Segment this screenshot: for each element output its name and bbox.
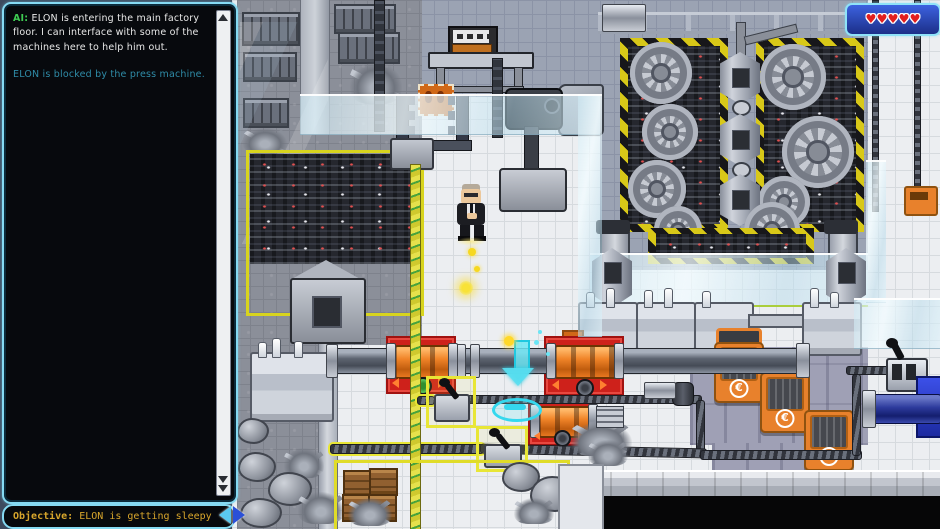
gear-icon: [760, 44, 826, 110]
glass-wall: [300, 94, 600, 135]
character-brow: [464, 193, 478, 197]
junction-lever-knob: [886, 338, 898, 348]
log-scrollbar[interactable]: [216, 10, 231, 496]
gear-icon: [630, 42, 692, 104]
euro-label: €: [735, 381, 743, 394]
marker-sparkle: [538, 330, 542, 334]
rock: [240, 498, 282, 528]
marker-oval-bar: [504, 404, 526, 410]
cable: [700, 450, 862, 460]
crate: [369, 468, 398, 496]
heart-icon: ♥: [888, 12, 897, 27]
game-screen: € € €: [0, 0, 940, 529]
control-machine-grid: [453, 30, 489, 43]
trail-dot: [459, 281, 473, 295]
metal-pallet: [334, 4, 396, 34]
lever-switch[interactable]: [434, 394, 470, 422]
metal-pallet: [338, 32, 400, 64]
bottle: [644, 290, 653, 308]
log-message: ELON is blocked by the press machine.: [13, 68, 210, 82]
bottle: [810, 288, 819, 308]
orange-hoist-block: [904, 186, 938, 216]
pipe-coupler: [470, 344, 480, 378]
pod-slot: [732, 130, 750, 150]
corner-tower-cap: [824, 220, 858, 234]
barrier-pillar-slot: [604, 262, 622, 284]
euro-badge: €: [776, 409, 795, 428]
nav-arrow-right-icon[interactable]: [233, 506, 245, 524]
pad-arrow-left: [552, 380, 559, 390]
heart-icon: ♥: [911, 12, 920, 27]
cable-highlighted[interactable]: [330, 444, 484, 454]
character-glow: [456, 237, 486, 246]
marker-arrow-down-icon[interactable]: [502, 368, 534, 386]
message-log-panel: AI: ELON is entering the main factory fl…: [2, 2, 238, 504]
marker-sparkle: [534, 340, 539, 345]
scrap-pile: [514, 498, 554, 524]
heart-icon: ♥: [877, 12, 886, 27]
health-hearts: ♥♥♥♥♥: [845, 3, 940, 36]
rock: [238, 452, 276, 482]
pipe-cap: [326, 344, 338, 378]
marker-stem: [514, 340, 530, 370]
workbench: [802, 302, 862, 356]
heart-icon: ♥: [900, 12, 909, 27]
machinery-shelf: [250, 154, 414, 264]
pod-slot: [732, 68, 750, 88]
trail-dot: [474, 266, 480, 272]
cable: [852, 374, 861, 456]
bottle: [258, 342, 267, 358]
bottle: [294, 341, 303, 358]
pad-arrow-left: [392, 378, 399, 388]
junction-slot: [892, 364, 902, 380]
bottle: [664, 288, 673, 308]
elon-character[interactable]: [455, 182, 487, 244]
euro-label: €: [781, 411, 789, 424]
bottle: [606, 288, 615, 308]
objective-text: ELON is getting sleepy: [73, 511, 211, 522]
marker-oval[interactable]: [492, 398, 542, 422]
character-hands: [467, 213, 477, 219]
scroll-up-icon[interactable]: [218, 14, 228, 21]
pod-slot: [732, 190, 750, 210]
message-text: ELON is blocked by the press machine.: [13, 69, 205, 80]
barrier-pillar-slot: [838, 262, 856, 284]
junction-slot: [906, 364, 916, 380]
bench-rail: [748, 314, 808, 328]
cylinder-cap: [546, 343, 556, 379]
marker-sun-dot: [504, 336, 514, 346]
glass-wall-vertical: [578, 94, 602, 337]
pad-arrow-right: [600, 380, 607, 390]
objective-bar: Objective: ELON is getting sleepy: [2, 504, 236, 529]
pad-arrow-left: [534, 432, 540, 440]
euro-robot: €: [804, 410, 854, 471]
scroll-down-icon[interactable]: [218, 485, 228, 492]
press-cylinder: [390, 345, 456, 379]
orange-hoist-slot: [910, 192, 928, 200]
rock: [237, 418, 269, 444]
objective-label: Objective:: [13, 511, 73, 522]
bottle: [830, 292, 839, 308]
top-wall: [420, 0, 600, 97]
blue-pipe-cap: [862, 390, 876, 428]
message-text: ELON is entering the main factory floor.…: [13, 13, 199, 53]
cylinder-cap: [386, 343, 396, 379]
robot-screen: [766, 377, 804, 411]
pod-joint: [732, 100, 751, 116]
euro-badge: €: [730, 379, 749, 398]
robot-screen: [810, 415, 848, 449]
trail-dot: [468, 248, 476, 256]
speaker-label: AI:: [13, 13, 28, 24]
gear-icon: [642, 104, 698, 160]
blue-pipe: [870, 394, 940, 424]
cylinder-cap: [614, 343, 624, 379]
cylinder-cap: [448, 343, 458, 379]
glass-wall-vertical: [866, 160, 886, 303]
lower-level-void: [596, 496, 940, 529]
marker-sparkle: [546, 352, 550, 356]
pipe-coupler: [796, 343, 810, 378]
nav-arrow-left-icon[interactable]: [219, 506, 231, 524]
heart-icon: ♥: [866, 12, 875, 27]
press-machine-base: [499, 168, 567, 212]
bottle: [702, 291, 711, 308]
log-message: AI: ELON is entering the main factory fl…: [13, 12, 210, 55]
plate-stack: [596, 406, 624, 428]
euro-robot: €: [760, 372, 810, 433]
scrap-pile: [348, 498, 392, 526]
metal-box: [602, 4, 646, 32]
bottle: [272, 338, 281, 358]
door-frame: [558, 464, 604, 529]
workbench: [250, 352, 334, 422]
scroll-down-icon[interactable]: [218, 476, 228, 483]
furnace-door: [312, 296, 342, 328]
small-shelf: [644, 382, 676, 399]
press-cylinder: [550, 345, 622, 379]
scrap-pile: [588, 440, 628, 466]
